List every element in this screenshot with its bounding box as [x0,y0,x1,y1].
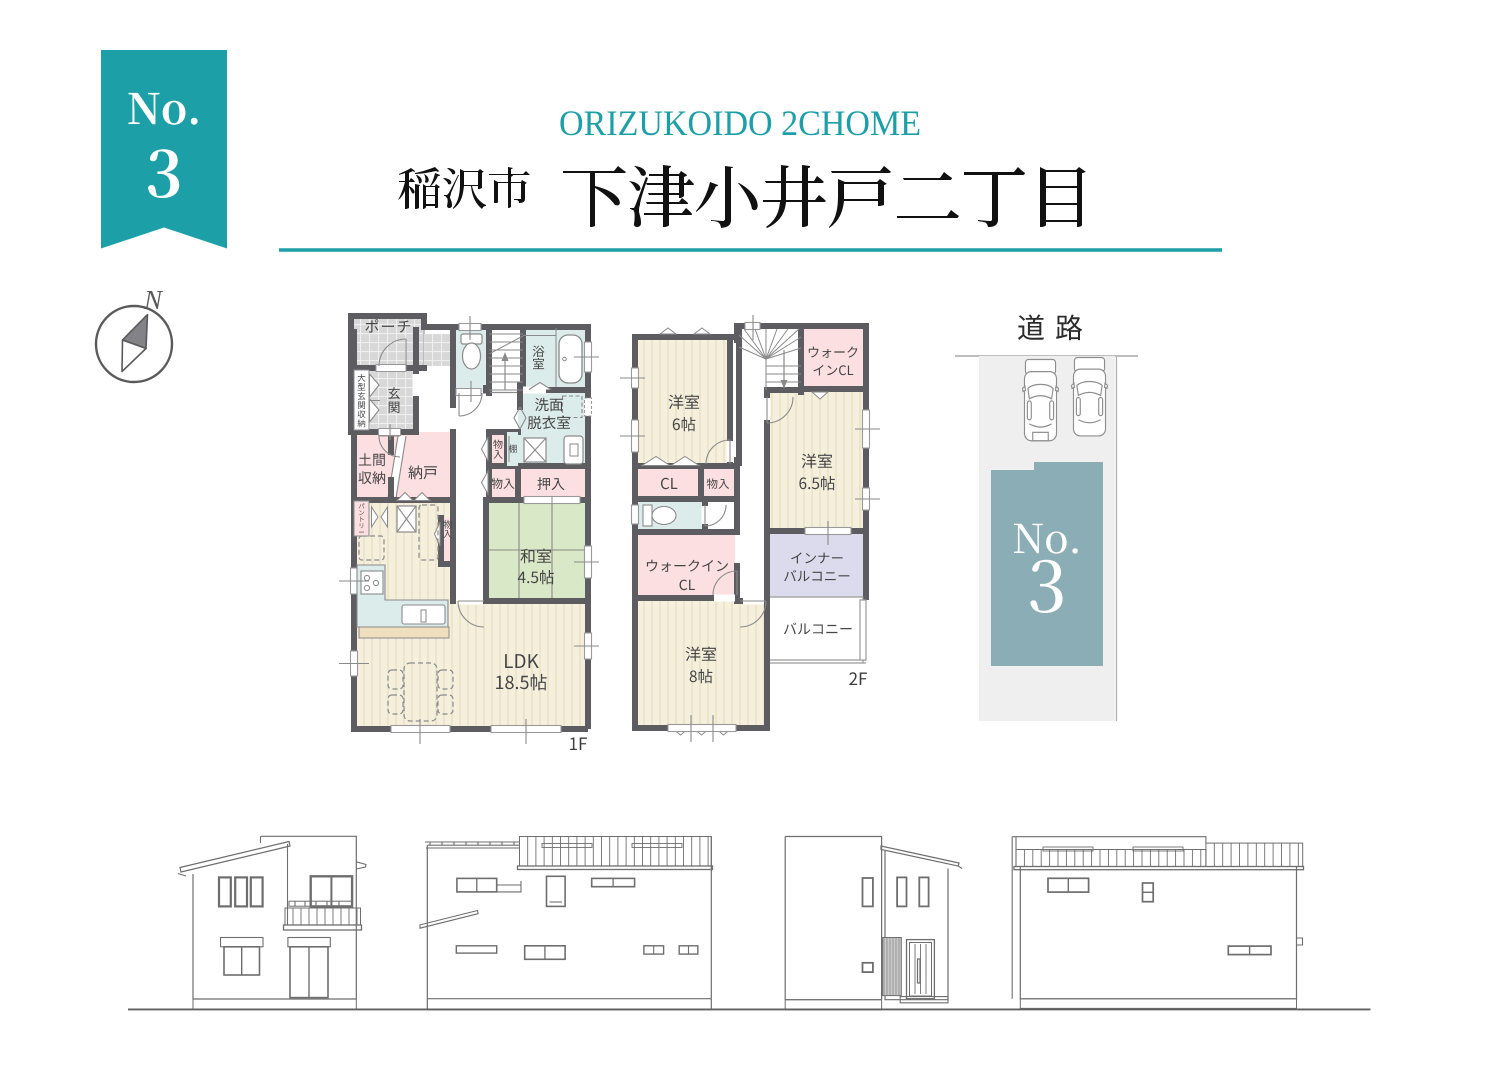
svg-text:N: N [143,285,164,315]
svg-text:ORIZUKOIDO 2CHOME: ORIZUKOIDO 2CHOME [559,103,921,143]
